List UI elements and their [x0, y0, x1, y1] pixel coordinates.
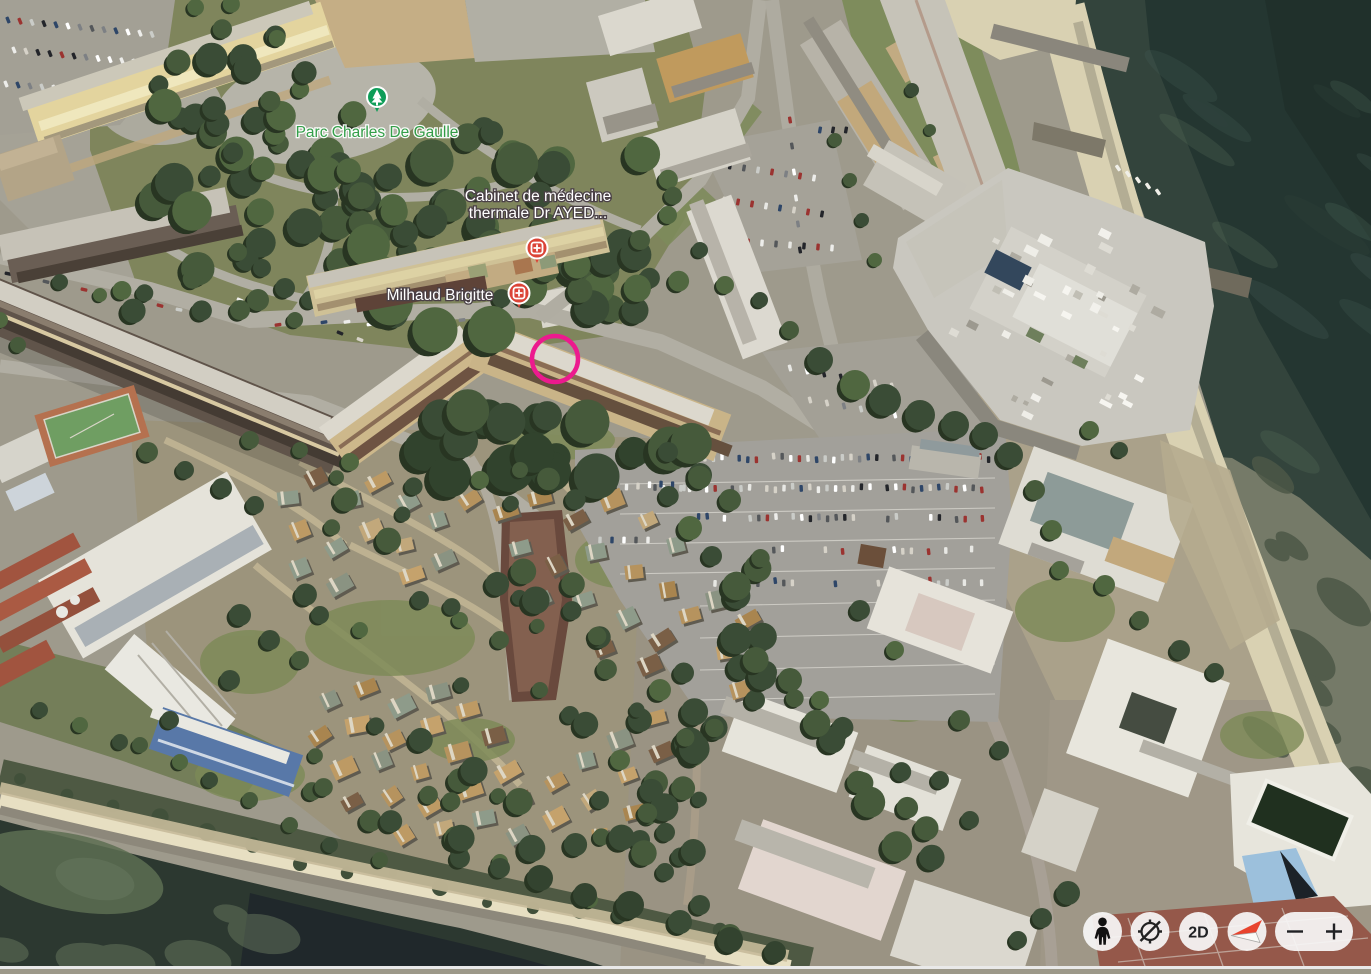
svg-text:Parc Charles De Gaulle: Parc Charles De Gaulle: [296, 124, 459, 141]
svg-text:2D: 2D: [1188, 925, 1208, 942]
svg-text:Milhaud Brigitte: Milhaud Brigitte: [387, 287, 494, 304]
svg-text:Cabinet de médecine: Cabinet de médecine: [465, 188, 612, 205]
svg-text:thermale Dr AYED...: thermale Dr AYED...: [469, 205, 607, 222]
